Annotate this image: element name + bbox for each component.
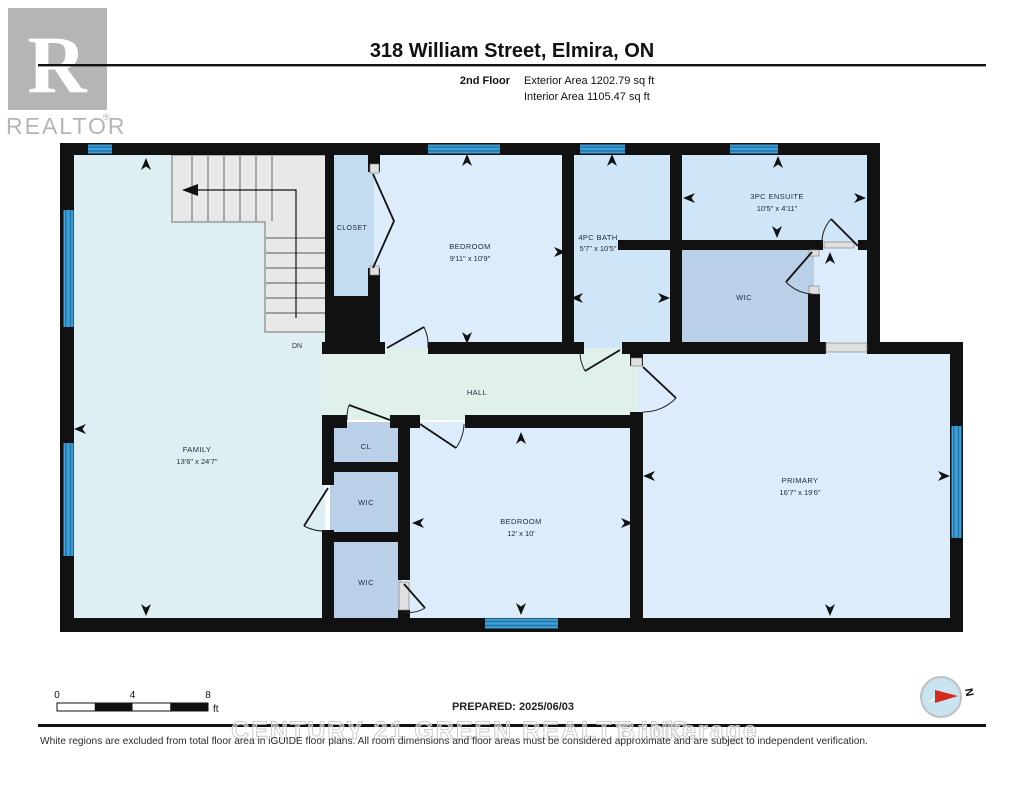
dims-bedroom-bottom: 12' x 10' [507,529,535,538]
window [485,619,558,629]
window [580,145,625,154]
label-family: FAMILY [183,445,212,454]
dims-primary: 16'7" x 19'6" [779,488,820,497]
exterior-area: Exterior Area 1202.79 sq ft [524,75,654,87]
scale-bar: 0 4 8 ft [54,690,219,715]
scale-tick-0: 0 [54,690,60,701]
room-hall [322,348,637,420]
label-bedroom-top: BEDROOM [449,242,491,251]
disclaimer-text: White regions are excluded from total fl… [40,736,868,747]
scale-tick-8: 8 [205,690,211,701]
label-hall: HALL [467,388,487,397]
window [428,145,500,154]
room-corridor [814,245,867,348]
title-rule [38,64,986,66]
label-wic-mid: WIC [358,498,374,507]
label-wic-lower: WIC [358,578,374,587]
window [730,145,778,154]
interior-area: Interior Area 1105.47 sq ft [524,91,650,103]
scale-unit: ft [213,704,219,715]
page-title: 318 William Street, Elmira, ON [370,40,654,62]
registered-mark: ® [103,112,110,122]
label-wic-ensuite: WIC [736,293,752,302]
compass-north-label: N [962,687,975,697]
label-cl: CL [361,442,371,451]
dims-bedroom-top: 9'11" x 10'9" [450,254,491,263]
prepared-date: PREPARED: 2025/06/03 [452,701,574,713]
floor-plan-page: R REALTOR ® 318 William Street, Elmira, … [0,0,1024,791]
window [64,443,74,556]
label-bath: 4PC BATH [578,233,617,242]
scale-tick-4: 4 [130,690,136,701]
stairs-dn-label: DN [292,343,302,350]
compass-icon: N [921,677,975,717]
window [952,426,962,538]
dims-ensuite: 10'5" x 4'11" [757,204,798,213]
label-closet: CLOSET [337,225,368,232]
window [64,210,74,327]
label-bedroom-bottom: BEDROOM [500,517,542,526]
realtor-logo: R REALTOR ® [6,8,127,139]
floor-label: 2nd Floor [460,75,511,87]
label-primary: PRIMARY [782,476,819,485]
dims-family: 13'6" x 24'7" [176,457,217,466]
dims-bath: 5'7" x 10'5" [580,244,617,253]
label-ensuite: 3PC ENSUITE [750,192,804,201]
window [88,145,112,154]
room-primary [637,348,950,622]
